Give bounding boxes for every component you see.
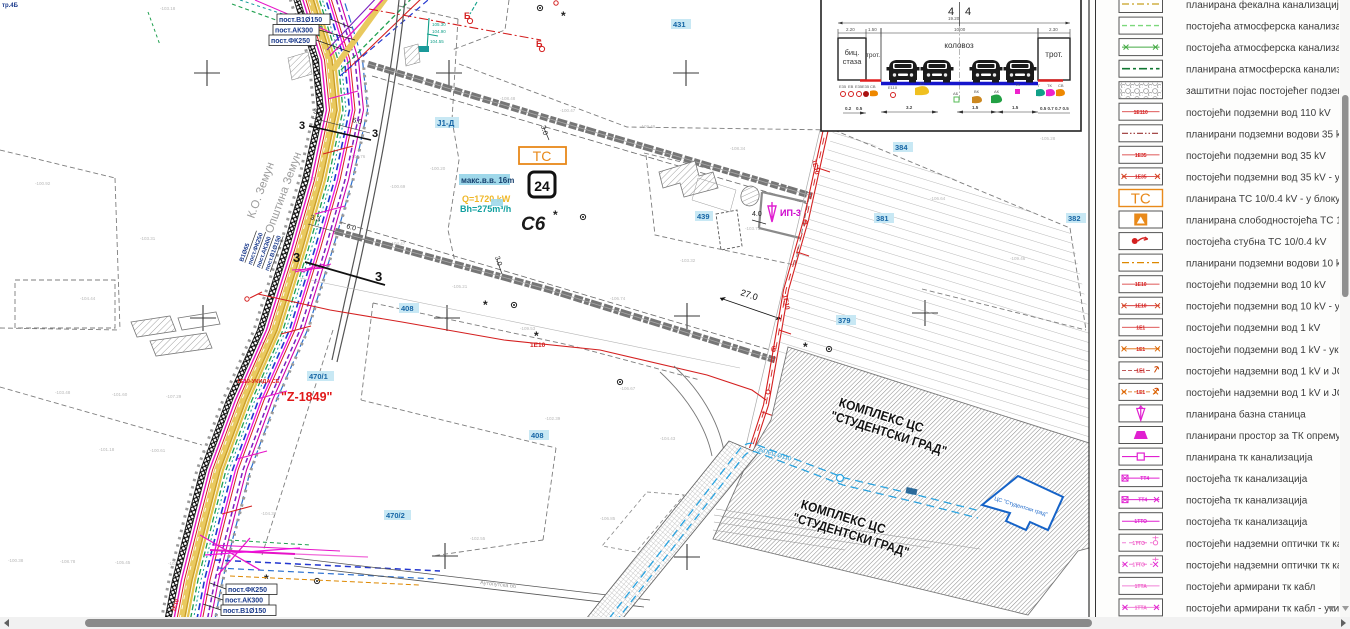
svg-text:постојећа тк канализација: постојећа тк канализација: [1186, 517, 1308, 528]
svg-text:-104.44: -104.44: [80, 296, 96, 301]
svg-text:ЕВ: ЕВ: [848, 84, 854, 89]
svg-text:105.30: 105.30: [432, 22, 446, 27]
svg-text:1Е35: 1Е35: [1135, 153, 1147, 159]
svg-text:-105.45: -105.45: [115, 560, 131, 565]
svg-text:104.90: 104.90: [432, 29, 446, 34]
svg-text:ТТ4: ТТ4: [1138, 498, 1147, 504]
svg-text:1Е10: 1Е10: [530, 342, 546, 349]
svg-text:0.2: 0.2: [845, 106, 852, 111]
svg-text:-104.37: -104.37: [261, 511, 277, 516]
svg-text:1.5: 1.5: [1012, 105, 1019, 110]
svg-text:2.20: 2.20: [846, 27, 855, 32]
svg-text:планирана атмосферска канализа: планирана атмосферска канализација: [1186, 64, 1350, 76]
svg-text:1ТТО: 1ТТО: [1132, 541, 1145, 547]
svg-text:планирана ТС 10/0.4 kV - у бло: планирана ТС 10/0.4 kV - у блоку: [1186, 193, 1340, 205]
svg-text:-106.74: -106.74: [610, 296, 626, 301]
svg-text:-105.28: -105.28: [1040, 136, 1056, 141]
svg-text:-100.69: -100.69: [390, 184, 406, 189]
svg-text:*: *: [561, 9, 566, 23]
svg-text:биц.: биц.: [845, 48, 860, 57]
svg-text:*: *: [534, 329, 539, 343]
svg-text:-106.85: -106.85: [600, 516, 616, 521]
svg-text:ТС: ТС: [1131, 190, 1151, 207]
svg-text:АК: АК: [994, 89, 1000, 94]
svg-text:планирана тк канализација: планирана тк канализација: [1186, 453, 1313, 464]
svg-text:104.55: 104.55: [430, 39, 444, 44]
svg-text:-100.92: -100.92: [35, 181, 51, 186]
svg-text:пост.В1Ø150: пост.В1Ø150: [223, 608, 266, 615]
svg-text:1Е1: 1Е1: [1136, 368, 1145, 374]
svg-text:постојећи подземни вод 1 kV: постојећи подземни вод 1 kV: [1186, 323, 1321, 334]
svg-text:0.5: 0.5: [856, 106, 863, 111]
svg-text:Ј1-Д: Ј1-Д: [437, 119, 455, 128]
svg-text:*: *: [553, 208, 558, 222]
svg-text:ТК: ТК: [1047, 83, 1052, 88]
svg-text:пост.ФК250: пост.ФК250: [271, 38, 310, 45]
svg-text:Е35: Е35: [862, 84, 870, 89]
svg-text:трот.: трот.: [866, 52, 880, 59]
svg-text:-107.29: -107.29: [166, 394, 182, 399]
svg-text:пост.В1Ø150: пост.В1Ø150: [279, 17, 322, 24]
svg-text:постојећа тк канализација: постојећа тк канализација: [1186, 474, 1308, 485]
svg-text:4.0: 4.0: [752, 211, 762, 218]
svg-text:408: 408: [401, 304, 414, 313]
svg-text:постојећи надземни вод 1 kV и: постојећи надземни вод 1 kV и ЈО: [1186, 366, 1345, 377]
svg-text:постојећа тк канализација: постојећа тк канализација: [1186, 496, 1308, 507]
svg-text:-103.48: -103.48: [55, 390, 71, 395]
svg-text:384: 384: [895, 143, 908, 152]
svg-text:3.2: 3.2: [906, 105, 913, 110]
svg-text:планирани простор за ТК опрему: планирани простор за ТК опрему: [1186, 431, 1341, 442]
svg-text:3: 3: [372, 128, 378, 140]
svg-text:1.5: 1.5: [972, 105, 979, 110]
svg-text:4: 4: [965, 6, 971, 18]
svg-text:10.00: 10.00: [954, 27, 966, 32]
svg-text:ТК: ТК: [1015, 82, 1020, 87]
svg-text:0.5 0.7 0.7 0.5: 0.5 0.7 0.7 0.5: [1040, 106, 1069, 111]
svg-text:381: 381: [876, 214, 889, 223]
svg-text:С6: С6: [521, 214, 546, 235]
svg-text:тр.4Б: тр.4Б: [2, 3, 19, 9]
svg-text:ТО: ТО: [919, 81, 924, 86]
svg-text:-103.18: -103.18: [160, 6, 176, 11]
svg-text:-103.31: -103.31: [140, 236, 156, 241]
svg-text:*: *: [264, 572, 269, 586]
svg-text:1Е110: 1Е110: [1134, 110, 1148, 116]
svg-text:постојећи подземни вод 10 kV -: постојећи подземни вод 10 kV - укида: [1186, 302, 1350, 313]
svg-text:Bh=275m³/h: Bh=275m³/h: [460, 204, 511, 214]
svg-text:379: 379: [838, 316, 851, 325]
svg-text:3: 3: [299, 120, 305, 132]
svg-text:СВ: СВ: [1058, 83, 1064, 88]
svg-text:пост.АК300: пост.АК300: [275, 28, 313, 35]
svg-text:постојећи подземни вод 10 kV: постојећи подземни вод 10 kV: [1186, 280, 1326, 291]
svg-text:постојећи надземни оптички тк: постојећи надземни оптички тк кабл -: [1186, 559, 1350, 571]
svg-text:постојећи подземни вод 1 kV -: постојећи подземни вод 1 kV - укида с: [1186, 345, 1350, 356]
svg-text:ТС: ТС: [533, 148, 552, 164]
svg-text:стаза: стаза: [843, 57, 863, 66]
svg-text:-104.43: -104.43: [660, 436, 676, 441]
svg-text:-108.34: -108.34: [730, 146, 746, 151]
svg-text:1Е10: 1Е10: [1135, 282, 1147, 288]
svg-text:заштитни појас постојећег подз: заштитни појас постојећег подземног: [1186, 86, 1350, 97]
svg-text:2.30: 2.30: [1049, 27, 1058, 32]
svg-text:24: 24: [534, 178, 550, 194]
svg-text:СВ: СВ: [870, 84, 876, 89]
svg-text:3: 3: [293, 250, 300, 265]
svg-text:планирана базна станица: планирана базна станица: [1186, 408, 1306, 420]
svg-text:1ТТА: 1ТТА: [1135, 584, 1148, 590]
svg-text:-100.47: -100.47: [560, 108, 576, 113]
svg-text:-101.60: -101.60: [112, 392, 128, 397]
svg-text:б: б: [771, 345, 776, 354]
svg-text:*: *: [483, 298, 488, 312]
svg-text:408: 408: [531, 431, 544, 440]
svg-text:пост.АК300: пост.АК300: [225, 598, 263, 605]
svg-text:постојећи подземни вод 110 kV: постојећи подземни вод 110 kV: [1186, 108, 1331, 119]
svg-text:1ТТО: 1ТТО: [1134, 519, 1147, 525]
svg-text:постојећи подземни вод 35 kV: постојећи подземни вод 35 kV: [1186, 151, 1326, 162]
svg-text:470/1: 470/1: [309, 372, 328, 381]
svg-text:Е35: Е35: [839, 84, 847, 89]
svg-text:19.20: 19.20: [948, 16, 960, 21]
svg-text:-103.32: -103.32: [680, 258, 696, 263]
svg-text:-109.49: -109.49: [640, 124, 656, 129]
svg-text:"Z-1849": "Z-1849": [281, 390, 333, 404]
svg-text:постојећа атмосферска канализа: постојећа атмосферска канализација: [1186, 21, 1350, 33]
svg-text:3: 3: [375, 269, 382, 284]
svg-text:1Е10: 1Е10: [1135, 304, 1147, 310]
svg-text:Е110: Е110: [888, 85, 898, 90]
svg-text:1.50: 1.50: [868, 27, 877, 32]
svg-text:-106.67: -106.67: [620, 386, 636, 391]
svg-text:-102.39: -102.39: [545, 416, 561, 421]
svg-text:планирана слободностојећа ТС 1: планирана слободностојећа ТС 10/0.4: [1186, 215, 1350, 227]
svg-text:трот.: трот.: [1045, 50, 1062, 59]
svg-text:планирани подземни водови 10 k: планирани подземни водови 10 kV, 1 k: [1186, 259, 1350, 270]
svg-text:1ТТО: 1ТТО: [1132, 562, 1145, 568]
svg-text:АБ: АБ: [953, 91, 959, 96]
svg-text:постојећи армирани тк кабл: постојећи армирани тк кабл: [1186, 581, 1315, 593]
svg-text:1ТТА: 1ТТА: [1135, 605, 1148, 611]
svg-text:1Е10-УКИДА СЕ: 1Е10-УКИДА СЕ: [237, 379, 280, 385]
svg-text:-108.48: -108.48: [500, 96, 516, 101]
svg-text:1Е1: 1Е1: [1136, 347, 1145, 353]
svg-text:470/2: 470/2: [386, 511, 405, 520]
svg-text:-105.21: -105.21: [452, 284, 468, 289]
svg-text:ТТ4: ТТ4: [1140, 476, 1149, 482]
svg-text:-108.78: -108.78: [60, 559, 76, 564]
svg-text:-100.38: -100.38: [8, 558, 24, 563]
svg-text:постојећа атмосферска канализа: постојећа атмосферска канализација: [1186, 42, 1350, 54]
svg-text:Q=1720 kW: Q=1720 kW: [462, 194, 511, 204]
svg-text:-102.55: -102.55: [470, 536, 486, 541]
svg-text:431: 431: [673, 20, 686, 29]
svg-text:382: 382: [1068, 214, 1081, 223]
svg-text:макс.в.в. 16m: макс.в.в. 16m: [461, 176, 514, 185]
svg-text:постојећи надземни оптички тк: постојећи надземни оптички тк кабл: [1186, 538, 1350, 550]
svg-text:планирани подземни водови 35 k: планирани подземни водови 35 kV: [1186, 129, 1348, 140]
svg-text:439: 439: [697, 212, 710, 221]
svg-text:1Е1: 1Е1: [1136, 390, 1145, 396]
svg-text:постојећи армирани тк кабл - у: постојећи армирани тк кабл - укида се: [1186, 602, 1350, 614]
svg-text:-100.20: -100.20: [430, 166, 446, 171]
svg-text:1Е1: 1Е1: [1136, 325, 1145, 331]
svg-text:1Е35: 1Е35: [1135, 174, 1147, 180]
svg-text:постојећа стубна ТС 10/0.4 kV: постојећа стубна ТС 10/0.4 kV: [1186, 236, 1327, 248]
svg-text:пост.ФК250: пост.ФК250: [228, 587, 267, 594]
svg-text:постојећи надземни вод 1 kV и: постојећи надземни вод 1 kV и ЈО - ук: [1186, 388, 1350, 399]
svg-text:-100.61: -100.61: [150, 448, 166, 453]
svg-text:-101.18: -101.18: [99, 447, 115, 452]
svg-text:планирана фекална канализација: планирана фекална канализација: [1186, 0, 1345, 11]
svg-text:ВК: ВК: [974, 89, 980, 94]
svg-text:коловоз: коловоз: [944, 41, 974, 50]
svg-text:постојећи подземни вод 35 kV -: постојећи подземни вод 35 kV - укида: [1186, 172, 1350, 183]
svg-text:ИП-3: ИП-3: [780, 208, 801, 218]
